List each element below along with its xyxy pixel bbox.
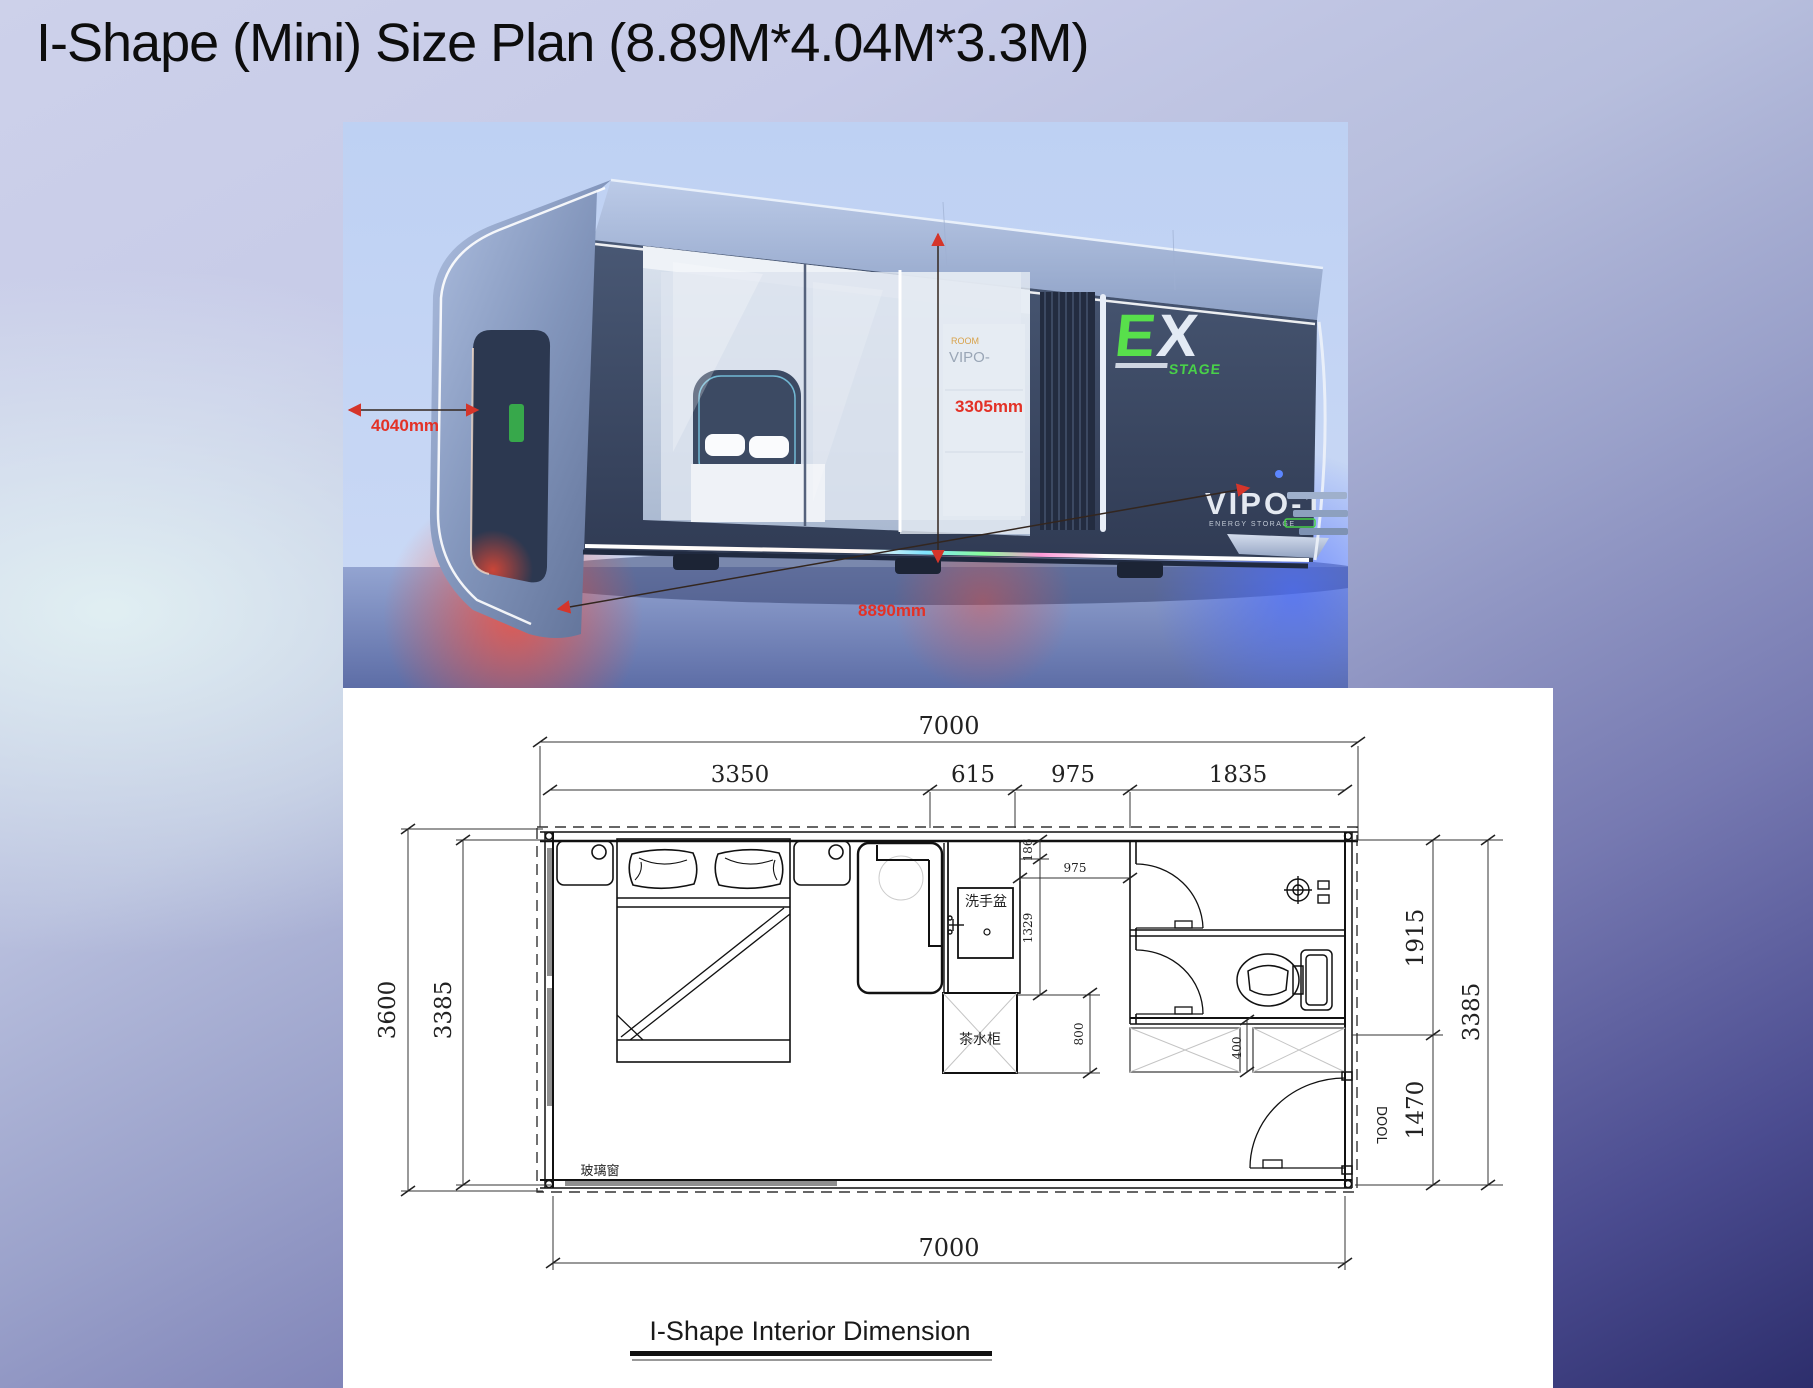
dim-615: 615: [951, 762, 995, 788]
dim-1835: 1835: [1209, 762, 1268, 788]
dim-right-3385: 3385: [1459, 983, 1485, 1042]
window-strip-bottom: [565, 1181, 837, 1186]
capsule-render-svg: ROOM VIPO- EX STAGE VIPO-1 ENERGY STORAG…: [343, 122, 1348, 688]
dim-bottom-total: 7000: [918, 1234, 979, 1262]
dim-186: 186: [1021, 839, 1035, 862]
glass-tag-room: ROOM: [951, 336, 979, 346]
slide-title: I-Shape (Mini) Size Plan (8.89M*4.04M*3.…: [36, 12, 1088, 74]
door-label: DOOL: [1373, 1106, 1388, 1144]
pillow: [749, 436, 789, 458]
dim-3350: 3350: [711, 762, 770, 788]
basin-label: 洗手盆: [965, 894, 1007, 910]
dim-inner-975: 975: [1064, 861, 1087, 875]
dim-3600: 3600: [375, 981, 401, 1040]
ex-logo-sub: STAGE: [1168, 361, 1222, 377]
model-tagline: ENERGY STORAGE: [1209, 521, 1295, 528]
tea-cabinet-label: 茶水柜: [959, 1032, 1001, 1048]
height-dimension-label: 3305mm: [955, 397, 1023, 416]
capsule-render-image: ROOM VIPO- EX STAGE VIPO-1 ENERGY STORAG…: [343, 122, 1348, 688]
dim-1329: 1329: [1021, 913, 1035, 944]
window-strip-left: [547, 848, 552, 976]
dim-975: 975: [1051, 762, 1095, 788]
dim-top-total: 7000: [918, 712, 979, 740]
dim-800: 800: [1072, 1023, 1086, 1046]
window-strip-left: [547, 988, 552, 1106]
dim-1915: 1915: [1403, 909, 1429, 968]
glass-tag-model: VIPO-: [949, 349, 990, 366]
plan-caption: I-Shape Interior Dimension: [630, 1316, 992, 1361]
dim-400: 400: [1230, 1037, 1244, 1060]
dim-1470: 1470: [1403, 1081, 1429, 1140]
pillow: [705, 434, 745, 456]
caption-text: I-Shape Interior Dimension: [649, 1316, 970, 1346]
floor-plan-panel: 洗手盆 茶水柜: [343, 688, 1553, 1388]
floor-plan-drawing: 洗手盆 茶水柜: [343, 688, 1553, 1388]
length-dimension-label: 8890mm: [858, 601, 926, 620]
slide-background: I-Shape (Mini) Size Plan (8.89M*4.04M*3.…: [0, 0, 1813, 1388]
width-dimension-label: 4040mm: [371, 416, 439, 435]
glass-window-label: 玻璃窗: [580, 1163, 619, 1179]
svg-text:EX: EX: [1112, 302, 1203, 369]
dim-left-3385: 3385: [431, 981, 457, 1040]
